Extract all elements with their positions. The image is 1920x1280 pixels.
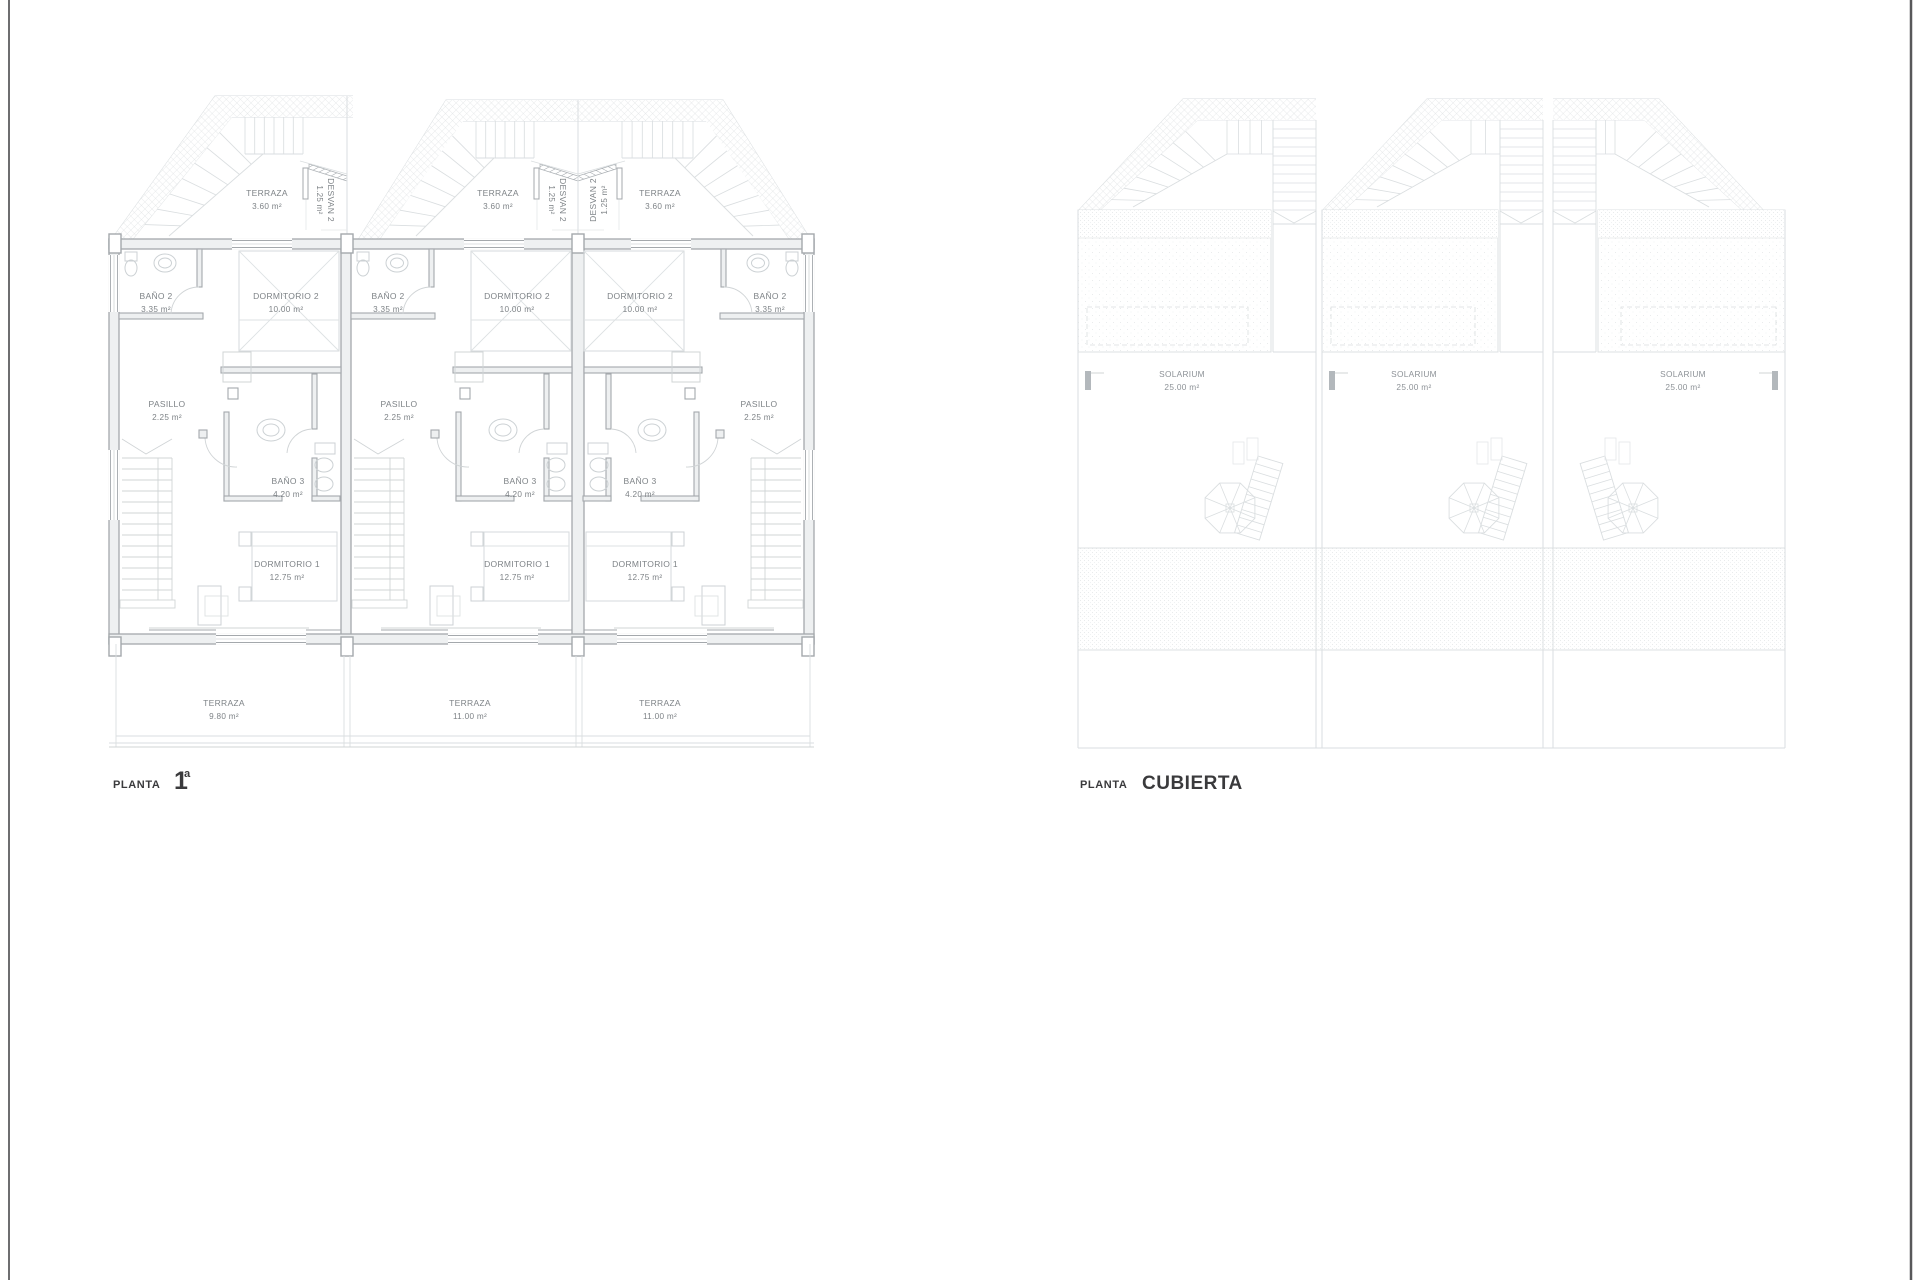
svg-text:2.25 m²: 2.25 m² — [384, 413, 414, 422]
svg-text:ª: ª — [184, 768, 191, 787]
svg-text:BAÑO 2: BAÑO 2 — [372, 291, 405, 301]
svg-text:DESVAN 2: DESVAN 2 — [558, 178, 568, 222]
svg-text:25.00 m²: 25.00 m² — [1665, 382, 1700, 392]
svg-text:TERRAZA: TERRAZA — [246, 188, 288, 198]
svg-text:DORMITORIO 2: DORMITORIO 2 — [607, 291, 673, 301]
svg-text:1.25 m²: 1.25 m² — [600, 185, 609, 214]
svg-text:4.20 m²: 4.20 m² — [273, 490, 303, 499]
svg-text:11.00 m²: 11.00 m² — [643, 712, 677, 721]
svg-text:3.35 m²: 3.35 m² — [373, 305, 403, 314]
svg-text:DORMITORIO 2: DORMITORIO 2 — [253, 291, 319, 301]
svg-text:2.25 m²: 2.25 m² — [744, 413, 774, 422]
svg-text:11.00 m²: 11.00 m² — [453, 712, 487, 721]
svg-text:DESVAN 2: DESVAN 2 — [588, 178, 598, 222]
svg-text:TERRAZA: TERRAZA — [449, 698, 491, 708]
svg-text:PLANTA: PLANTA — [113, 779, 160, 791]
svg-text:DORMITORIO 2: DORMITORIO 2 — [484, 291, 550, 301]
svg-text:2.25 m²: 2.25 m² — [152, 413, 182, 422]
svg-text:CUBIERTA: CUBIERTA — [1142, 773, 1243, 794]
svg-text:3.35 m²: 3.35 m² — [141, 305, 171, 314]
svg-text:4.20 m²: 4.20 m² — [625, 490, 655, 499]
svg-text:TERRAZA: TERRAZA — [203, 698, 245, 708]
svg-text:BAÑO 3: BAÑO 3 — [624, 476, 657, 486]
svg-text:10.00 m²: 10.00 m² — [623, 305, 658, 314]
svg-text:1.25 m²: 1.25 m² — [547, 185, 556, 214]
svg-text:BAÑO 3: BAÑO 3 — [504, 476, 537, 486]
svg-text:PASILLO: PASILLO — [381, 399, 418, 409]
svg-text:3.60 m²: 3.60 m² — [645, 202, 675, 211]
svg-text:PLANTA: PLANTA — [1080, 779, 1127, 791]
svg-text:12.75 m²: 12.75 m² — [270, 573, 305, 582]
svg-text:1.25 m²: 1.25 m² — [315, 185, 324, 214]
svg-text:4.20 m²: 4.20 m² — [505, 490, 535, 499]
svg-text:BAÑO 2: BAÑO 2 — [754, 291, 787, 301]
svg-text:3.60 m²: 3.60 m² — [483, 202, 513, 211]
svg-text:TERRAZA: TERRAZA — [477, 188, 519, 198]
svg-text:10.00 m²: 10.00 m² — [500, 305, 535, 314]
svg-text:BAÑO 3: BAÑO 3 — [272, 476, 305, 486]
svg-text:SOLARIUM: SOLARIUM — [1159, 369, 1205, 379]
svg-text:PASILLO: PASILLO — [741, 399, 778, 409]
svg-text:SOLARIUM: SOLARIUM — [1391, 369, 1437, 379]
svg-text:25.00 m²: 25.00 m² — [1164, 382, 1199, 392]
svg-text:BAÑO 2: BAÑO 2 — [140, 291, 173, 301]
svg-text:3.60 m²: 3.60 m² — [252, 202, 282, 211]
svg-text:DESVAN 2: DESVAN 2 — [326, 178, 336, 222]
svg-text:12.75 m²: 12.75 m² — [500, 573, 535, 582]
svg-text:SOLARIUM: SOLARIUM — [1660, 369, 1706, 379]
svg-text:TERRAZA: TERRAZA — [639, 188, 681, 198]
svg-text:PASILLO: PASILLO — [149, 399, 186, 409]
svg-text:25.00 m²: 25.00 m² — [1396, 382, 1431, 392]
svg-text:9.80 m²: 9.80 m² — [209, 712, 239, 721]
svg-text:DORMITORIO 1: DORMITORIO 1 — [484, 559, 550, 569]
svg-text:12.75 m²: 12.75 m² — [628, 573, 663, 582]
svg-text:DORMITORIO 1: DORMITORIO 1 — [612, 559, 678, 569]
svg-text:DORMITORIO 1: DORMITORIO 1 — [254, 559, 320, 569]
svg-text:10.00 m²: 10.00 m² — [269, 305, 304, 314]
svg-text:3.35 m²: 3.35 m² — [755, 305, 785, 314]
svg-text:TERRAZA: TERRAZA — [639, 698, 681, 708]
